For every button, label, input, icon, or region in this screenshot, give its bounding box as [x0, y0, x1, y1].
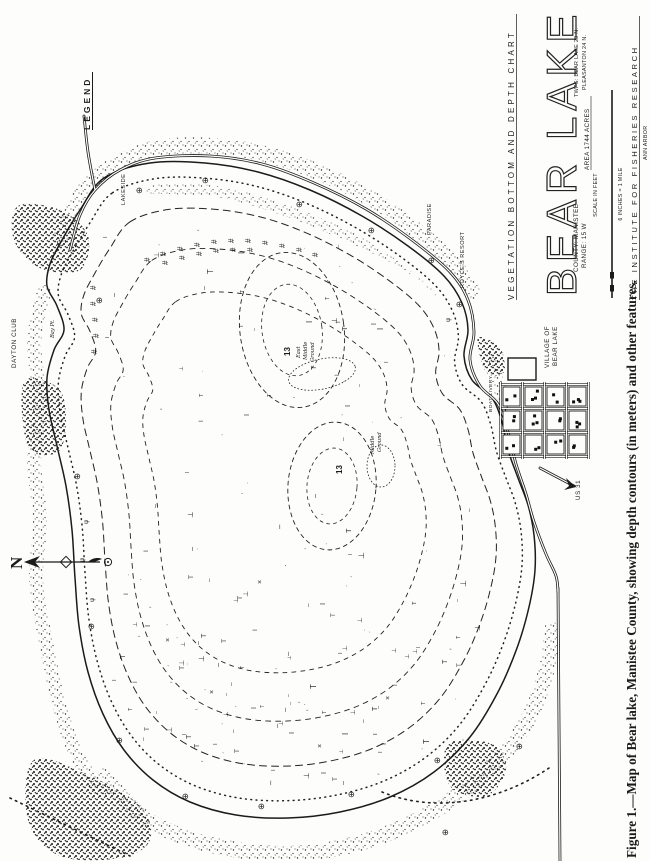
range-label: RANGE: 15 W	[581, 223, 588, 268]
veg-symbol: I	[378, 751, 384, 753]
brush-shelter-icon: #	[261, 240, 270, 245]
veg-symbol: –	[206, 578, 213, 582]
village-house	[559, 440, 562, 443]
village-house	[513, 394, 516, 397]
village-house	[512, 419, 515, 422]
veg-symbol: T	[309, 365, 318, 370]
veg-symbol: I	[287, 732, 296, 734]
brush-shelter-icon: #	[210, 239, 219, 244]
veg-symbol: I	[379, 743, 388, 745]
veg-symbol: ʼ	[292, 396, 300, 398]
veg-symbol: ·	[200, 689, 209, 691]
trash-icon: ×	[257, 580, 264, 584]
veg-symbol: –	[187, 546, 196, 551]
veg-symbol: ʼ	[377, 773, 386, 775]
brush-shelter-icon: #	[227, 238, 236, 243]
veg-symbol: ʼ	[298, 701, 306, 703]
veg-symbol: I	[251, 707, 258, 709]
veg-symbol: T	[373, 732, 379, 736]
vegetation-examination-icon: ⊕	[256, 803, 266, 810]
veg-symbol: T	[240, 290, 246, 293]
veg-symbol: T	[422, 739, 431, 744]
veg-symbol: T	[322, 710, 328, 714]
veg-symbol: I	[343, 405, 352, 407]
village-house	[573, 444, 576, 447]
veg-symbol: ·	[185, 663, 191, 665]
veg-symbol: I	[213, 743, 219, 745]
veg-symbol: ·	[172, 637, 181, 639]
marsh-icon: ψ	[446, 318, 452, 322]
village-house	[531, 398, 534, 401]
chart-type-title: VEGETATION BOTTOM AND DEPTH CHART	[507, 30, 516, 300]
village-label-line1: VILLAGE OF	[544, 326, 551, 368]
vegetation-examination-icon: ⊕	[294, 201, 304, 208]
veg-symbol: I	[112, 679, 118, 681]
veg-symbol: ·	[200, 370, 206, 372]
veg-symbol: I	[392, 684, 399, 686]
veg-symbol: ·	[367, 631, 373, 633]
veg-symbol: –	[455, 598, 461, 602]
village-house	[575, 421, 578, 424]
veg-symbol: –	[154, 711, 160, 714]
veg-symbol: T	[234, 749, 241, 753]
brush-texture-patch	[477, 337, 504, 376]
village-house	[558, 419, 561, 422]
veg-symbol: I	[237, 252, 246, 254]
veg-symbol: T	[330, 613, 337, 617]
veg-symbol: ʼ	[240, 492, 248, 494]
veg-symbol: ʼ	[235, 706, 241, 707]
veg-symbol: T	[344, 528, 353, 533]
scale-bar: SCALE IN FEET 6 INCHES = 1 MILE	[593, 90, 624, 298]
village-house	[536, 390, 539, 393]
brush-shelter-icon: #	[278, 243, 287, 248]
village-house	[532, 423, 535, 426]
village-house	[552, 393, 555, 396]
marsh-icon: ψ	[90, 598, 96, 602]
veg-symbol: ⊥	[357, 552, 366, 559]
veg-symbol: ⊥	[342, 645, 349, 651]
brush-texture-patch	[22, 378, 66, 455]
compass-rosette-dot	[107, 561, 109, 563]
veg-symbol: ⊥	[154, 252, 161, 258]
vegetation-examination-icon: ⊕	[346, 791, 356, 798]
veg-symbol: ⊥	[339, 749, 345, 754]
township-line-1: TWPS: BEAR LAKE 23 N.	[574, 28, 580, 97]
veg-symbol: T	[194, 743, 201, 748]
trash-icon: ×	[317, 744, 324, 748]
village-house	[534, 448, 537, 451]
village-label-line2: BEAR LAKE	[552, 326, 559, 366]
veg-symbol: –	[230, 729, 237, 733]
depth-contour-basin-south-inner	[304, 446, 360, 526]
veg-symbol: ʼ	[122, 376, 130, 377]
wooded-texture-band	[34, 292, 100, 790]
village-block	[503, 435, 520, 454]
vegetation-examination-icon: ⊕	[426, 257, 436, 264]
legend: LEGEND	[82, 72, 93, 130]
village-block	[503, 411, 520, 430]
marsh-icon: ψ	[80, 558, 86, 562]
trash-icon: ×	[209, 690, 216, 694]
brush-shelter-icon: #	[161, 260, 170, 265]
veg-symbol: ·	[338, 414, 346, 416]
village-house	[578, 422, 581, 425]
township-line-2: PLEASANTON 24 N.	[582, 35, 588, 90]
veg-symbol: I	[252, 629, 259, 631]
veg-symbol: ⊥	[223, 711, 230, 717]
veg-symbol: ·	[271, 667, 280, 670]
veg-symbol: –	[336, 244, 342, 248]
village-block	[525, 387, 542, 406]
veg-symbol: ⊥	[350, 709, 357, 715]
marsh-icon: ψ	[84, 520, 90, 524]
veg-symbol: ·	[151, 769, 158, 771]
veg-symbol: ·	[217, 434, 226, 436]
veg-symbol: –	[252, 328, 258, 331]
vegetation-examination-icon: ⊕	[114, 737, 124, 744]
veg-symbol: –	[288, 701, 294, 705]
brush-shelter-icon: #	[244, 238, 253, 243]
veg-symbol: ʼ	[144, 347, 152, 349]
veg-symbol: I	[103, 236, 109, 238]
veg-symbol: ·	[300, 547, 309, 550]
brush-shelter-icon: #	[212, 248, 221, 253]
shore-vegetation-texture	[10, 145, 552, 860]
veg-symbol: –	[195, 641, 202, 645]
village-block	[503, 387, 520, 406]
veg-symbol: ⊥	[412, 649, 419, 654]
village-house	[512, 444, 515, 447]
veg-symbol: ·	[423, 550, 430, 552]
veg-symbol: –	[275, 524, 284, 529]
veg-symbol: –	[266, 780, 275, 785]
veg-symbol: I	[271, 769, 277, 771]
village-house	[505, 398, 508, 401]
vegetation-examination-icon: ⊕	[86, 623, 96, 630]
veg-symbol: ⊥	[437, 444, 443, 448]
village-house	[576, 425, 579, 428]
trash-icon: ×	[165, 638, 172, 642]
village-block	[525, 411, 542, 430]
veg-symbol: I	[335, 321, 342, 323]
veg-symbol: –	[213, 662, 222, 667]
veg-symbol: ʼ	[140, 579, 146, 580]
veg-symbol: ·	[240, 763, 248, 765]
village-block	[547, 435, 564, 454]
shoal-lower-label-2: Ground	[377, 432, 383, 452]
veg-symbol: T	[456, 663, 463, 667]
veg-symbol: I	[132, 681, 139, 683]
veg-symbol: I	[198, 420, 205, 422]
veg-symbol: ⊥	[396, 794, 403, 800]
depth-contour-line	[111, 248, 463, 721]
village-house	[533, 414, 536, 417]
vegetation-examination-icon: ⊕	[440, 829, 450, 836]
veg-symbol: ·	[441, 355, 448, 357]
veg-symbol: ·	[453, 698, 459, 700]
veg-symbol: ·	[281, 564, 290, 567]
veg-symbol: ·	[125, 574, 132, 576]
veg-symbol: I	[123, 593, 130, 595]
veg-symbol: ʼ	[169, 681, 178, 683]
veg-symbol: T	[240, 665, 246, 669]
veg-symbol: ʼ	[449, 648, 458, 650]
veg-symbol: ʼ	[375, 309, 381, 310]
village-grid	[500, 358, 589, 459]
veg-symbol: –	[311, 494, 319, 498]
veg-symbol: –	[360, 719, 367, 723]
veg-symbol: –	[224, 693, 230, 696]
brush-shelter-icon: #	[195, 251, 204, 256]
vegetation-examination-icon: ⊕	[454, 301, 464, 308]
veg-symbol: T	[332, 777, 339, 781]
veg-symbol: I	[319, 772, 328, 774]
veg-symbol: ʼ	[159, 408, 168, 410]
veg-symbol: T	[144, 727, 151, 731]
village-block	[508, 358, 536, 380]
depth-contour-basin-north-inner	[256, 280, 328, 379]
village-block	[525, 435, 542, 454]
veg-symbol: I	[334, 374, 341, 376]
veg-symbol: ·	[346, 575, 355, 578]
veg-symbol: I	[305, 321, 314, 323]
scanned-map-page: ######################⊕⊕⊕⊕⊕⊕⊕⊕⊕⊕⊕⊕⊕⊕⊕⊕××…	[0, 0, 650, 861]
veg-symbol: –	[340, 437, 347, 441]
brush-shelter-icon: #	[311, 252, 320, 257]
royces-resort-label: ROYCE'S RESORT	[460, 231, 466, 288]
veg-symbol: ·	[159, 764, 165, 766]
brush-shelter-icon: #	[90, 349, 99, 354]
legend-title: LEGEND	[82, 77, 92, 130]
veg-symbol: ⊥	[186, 512, 195, 518]
brush-shelter-icon: #	[229, 247, 238, 252]
veg-symbol: T	[185, 734, 193, 739]
vegetation-examination-icon: ⊕	[72, 473, 82, 480]
veg-symbol: ⊥	[459, 580, 468, 587]
veg-symbol: T	[221, 639, 228, 643]
veg-symbol: –	[466, 508, 473, 512]
veg-symbol: –	[228, 682, 235, 686]
shoal-lower-label-1: Middle	[370, 436, 376, 455]
veg-symbol: T	[260, 705, 266, 708]
paradise-label: PARADISE	[427, 203, 433, 235]
veg-symbol: ·	[156, 244, 163, 246]
shoal-upper-label-1: East	[296, 345, 302, 359]
institute-name: THE INSTITUTE FOR FISHERIES RESEARCH	[630, 45, 639, 300]
veg-symbol: –	[140, 737, 147, 741]
vegetation-examination-icon: ⊕	[134, 187, 144, 194]
veg-symbol: T	[372, 706, 379, 711]
veg-symbol: ⊥	[473, 625, 482, 631]
veg-symbol: –	[357, 384, 363, 387]
boat-livery-label: BOAT LIVERY	[488, 375, 494, 412]
bear-lake-map: ######################⊕⊕⊕⊕⊕⊕⊕⊕⊕⊕⊕⊕⊕⊕⊕⊕××…	[0, 0, 650, 861]
depth-contour-basin-south	[283, 418, 382, 553]
veg-symbol: I	[371, 323, 378, 325]
veg-symbol: T	[412, 601, 418, 605]
veg-symbol: ·	[419, 748, 426, 750]
veg-symbol: T	[199, 633, 208, 638]
village-house	[578, 400, 581, 403]
veg-symbol: T	[440, 659, 449, 664]
vegetation-scatter: –·ʼT–Iʼʼʼ·TTIIT⊥IT⊥⊥I––T–·–·ʼI·T⊥··–··–·…	[103, 229, 502, 800]
brush-shelter-icon: #	[178, 255, 187, 260]
veg-symbol: T	[340, 326, 349, 331]
veg-symbol: ʼ	[201, 760, 209, 762]
veg-symbol: ⊥	[391, 648, 398, 653]
trash-icon: ×	[385, 696, 392, 700]
veg-symbol: ʼ	[138, 635, 146, 637]
vegetation-examination-icon: ⊕	[432, 757, 442, 764]
vegetation-examination-icon: ⊕	[94, 297, 104, 304]
veg-symbol: ·	[217, 723, 226, 725]
institute-city: ANN ARBOR	[643, 126, 649, 160]
veg-symbol: ʼ	[305, 709, 314, 711]
veg-symbol: ʼ	[148, 606, 157, 608]
veg-symbol: –	[280, 707, 289, 712]
veg-symbol: T	[128, 707, 134, 711]
veg-symbol: ⊥	[167, 727, 174, 733]
depth-contour-basin-north	[230, 246, 355, 415]
veg-symbol: ⊥	[278, 721, 285, 726]
veg-symbol: ·	[219, 752, 227, 754]
veg-symbol: ʼ	[321, 513, 329, 515]
veg-symbol: –	[339, 781, 347, 785]
veg-symbol: –	[109, 292, 118, 297]
veg-symbol: T	[421, 701, 427, 705]
veg-symbol: ʼ	[343, 381, 350, 382]
veg-symbol: I	[203, 790, 212, 792]
veg-symbol: ·	[343, 585, 350, 587]
veg-symbol: ·	[323, 543, 330, 545]
veg-symbol: ⊥	[197, 656, 206, 662]
veg-symbol: ·	[163, 664, 172, 667]
shoal-upper-label-2: Middle	[303, 342, 309, 361]
brush-shelter-icon: #	[92, 333, 101, 338]
brush-shelter-icon: #	[246, 247, 255, 252]
village-block	[547, 411, 564, 430]
village-house	[534, 397, 537, 400]
brush-shelter-icon: #	[91, 317, 100, 322]
veg-symbol: ·	[195, 708, 201, 710]
veg-symbol: T	[325, 296, 331, 300]
veg-symbol: ʼ	[339, 266, 345, 267]
lakeside-label: LAKESIDE	[121, 174, 127, 205]
village-house	[505, 447, 508, 450]
village-house	[572, 400, 575, 403]
bay-point-label: Bay Pt.	[50, 319, 56, 339]
scale-label: SCALE IN FEET	[593, 173, 599, 217]
veg-symbol: ·	[164, 624, 171, 626]
veg-symbol: T	[267, 393, 273, 397]
veg-symbol: I	[105, 337, 111, 339]
village-house	[554, 441, 557, 444]
county-label: COUNTY: MANISTEE	[573, 204, 580, 272]
veg-symbol: I	[341, 733, 350, 735]
veg-symbol: –	[201, 286, 208, 290]
dayton-club-label: DAYTON CLUB	[11, 318, 18, 368]
veg-symbol: I	[185, 472, 191, 473]
veg-symbol: –	[152, 504, 159, 508]
veg-symbol: ·	[245, 482, 251, 484]
title-block: VEGETATION BOTTOM AND DEPTH CHART BEAR L…	[507, 9, 649, 300]
veg-symbol: ⊥	[180, 642, 187, 647]
shoal-upper-label-3: Ground	[310, 342, 316, 362]
village-house	[513, 415, 516, 418]
veg-symbol: –	[493, 238, 502, 242]
vegetation-examination-icon: ⊕	[200, 177, 210, 184]
north-label: N	[7, 556, 26, 569]
veg-symbol: I	[338, 652, 344, 654]
brush-texture-patch	[444, 740, 506, 797]
veg-symbol: I	[376, 328, 385, 330]
veg-symbol: ·	[347, 282, 356, 284]
veg-symbol: ·	[362, 629, 368, 631]
figure-caption: Figure 1.—Map of Bear lake, Manistee Cou…	[624, 280, 639, 858]
veg-symbol: T	[456, 635, 462, 639]
veg-symbol: ⊥	[302, 772, 311, 779]
veg-symbol: ·	[370, 421, 376, 423]
veg-symbol: I	[143, 625, 152, 627]
veg-symbol: ⊥	[179, 366, 185, 371]
scale-hatch	[610, 285, 614, 292]
veg-symbol: T	[199, 393, 205, 397]
village-block	[569, 435, 586, 454]
lake-area: AREA 1744 ACRES	[584, 108, 591, 170]
veg-symbol: ⊥	[287, 656, 293, 660]
veg-symbol: I	[143, 550, 150, 552]
village-house	[536, 421, 539, 424]
village-block	[547, 387, 564, 406]
scale-hatch	[610, 272, 614, 279]
veg-symbol: T	[206, 269, 215, 274]
veg-symbol: –	[286, 694, 292, 697]
veg-symbol: I	[384, 361, 390, 363]
veg-symbol: T	[309, 684, 318, 689]
north-arrow: N	[7, 556, 112, 569]
veg-symbol: –	[283, 651, 292, 656]
veg-symbol: I	[416, 647, 422, 648]
veg-symbol: ⊥	[132, 622, 139, 627]
veg-symbol: ⊥	[404, 654, 411, 659]
veg-symbol: ⊥	[243, 591, 250, 597]
vegetation-examination-icon: ⊕	[180, 793, 190, 800]
brush-shelter-icon: #	[89, 285, 98, 290]
village-house	[556, 401, 559, 404]
veg-symbol: ʼ	[196, 229, 205, 231]
brush-shelter-icon: #	[193, 242, 202, 247]
scale-note: 6 INCHES = 1 MILE	[618, 167, 624, 220]
village-block	[569, 387, 586, 406]
veg-symbol: ⊥	[357, 617, 364, 623]
veg-symbol: ·	[396, 417, 405, 419]
depth-label-south: 13	[335, 465, 344, 474]
veg-symbol: –	[305, 603, 312, 607]
veg-symbol: ·	[323, 279, 332, 282]
veg-symbol: T	[188, 575, 195, 579]
veg-symbol: ·	[302, 247, 308, 249]
village-house	[537, 446, 540, 449]
veg-symbol: ·	[179, 250, 186, 252]
brush-shelter-icon: #	[143, 257, 152, 262]
veg-symbol: ⊥	[233, 598, 240, 603]
vegetation-examination-icon: ⊕	[366, 227, 376, 234]
veg-symbol: I	[318, 603, 327, 605]
veg-symbol: I	[348, 554, 354, 555]
veg-symbol: I	[242, 414, 251, 416]
wooded-texture-band	[60, 145, 472, 292]
